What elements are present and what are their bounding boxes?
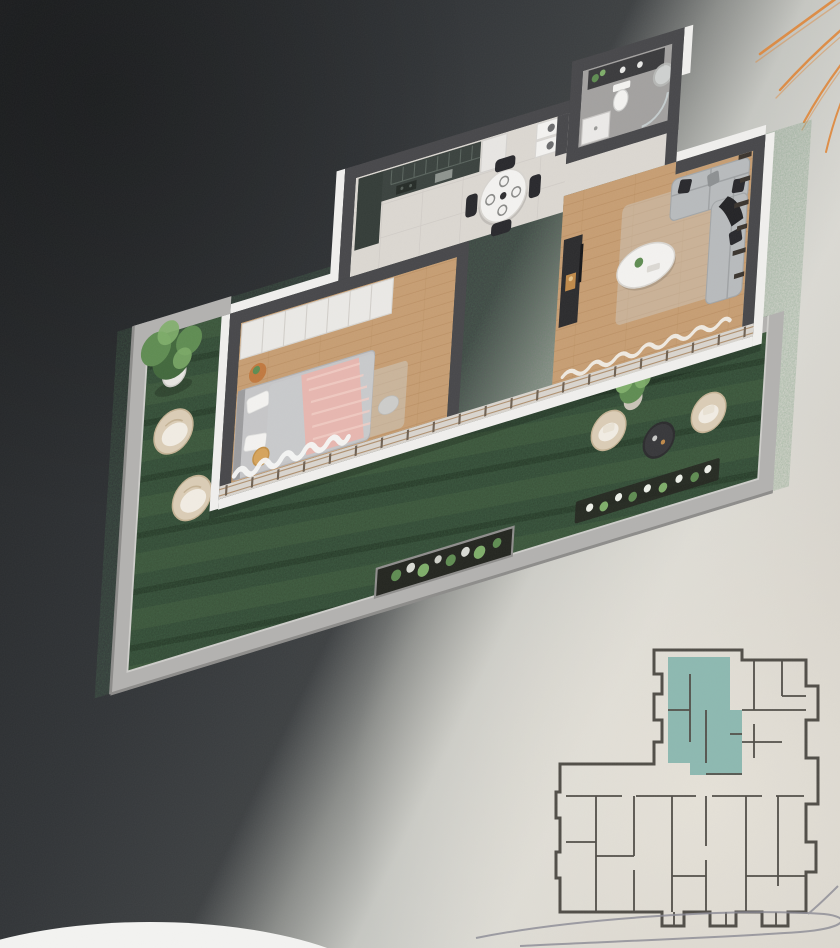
scene-canvas (0, 0, 840, 948)
photo-grain-overlay (0, 0, 840, 948)
brochure-page (0, 0, 840, 948)
